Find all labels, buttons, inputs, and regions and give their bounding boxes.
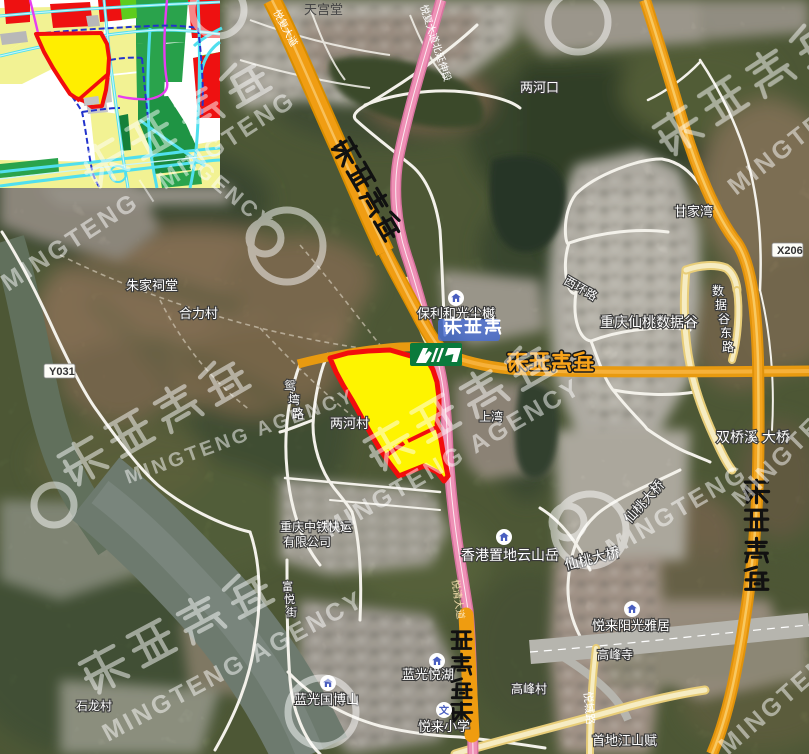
svg-text:悦来阳光雅居: 悦来阳光雅居: [592, 618, 670, 633]
svg-text:悦: 悦: [284, 592, 295, 606]
svg-text:X206: X206: [777, 245, 803, 257]
svg-text:香港置地云山岳: 香港置地云山岳: [461, 547, 559, 563]
svg-text:数: 数: [712, 283, 724, 298]
svg-text:悦来小学: 悦来小学: [418, 719, 470, 734]
svg-text:天宫堂: 天宫堂: [304, 2, 343, 17]
svg-text:蓝光悦湖: 蓝光悦湖: [402, 667, 454, 682]
svg-text:两河村: 两河村: [330, 416, 369, 431]
svg-text:重庆仙桃数据谷: 重庆仙桃数据谷: [600, 314, 698, 330]
svg-text:首地江山赋: 首地江山赋: [592, 733, 657, 748]
svg-text:甘家湾: 甘家湾: [674, 204, 713, 219]
svg-text:富: 富: [282, 579, 293, 593]
svg-text:鸳: 鸳: [284, 378, 296, 393]
svg-text:据: 据: [715, 298, 727, 312]
svg-text:合力村: 合力村: [179, 306, 218, 321]
svg-text:有限公司: 有限公司: [283, 535, 331, 549]
svg-text:两河口: 两河口: [520, 80, 559, 95]
svg-text:朱家祠堂: 朱家祠堂: [126, 278, 178, 293]
svg-text:Y031: Y031: [49, 366, 75, 378]
svg-text:东: 东: [720, 326, 732, 340]
svg-text:高峰寺: 高峰寺: [597, 647, 633, 662]
svg-text:高峰村: 高峰村: [511, 681, 547, 696]
svg-text:石龙村: 石龙村: [76, 699, 112, 713]
svg-text:谷: 谷: [718, 312, 730, 326]
svg-text:文: 文: [439, 704, 450, 717]
svg-text:路: 路: [722, 339, 734, 354]
